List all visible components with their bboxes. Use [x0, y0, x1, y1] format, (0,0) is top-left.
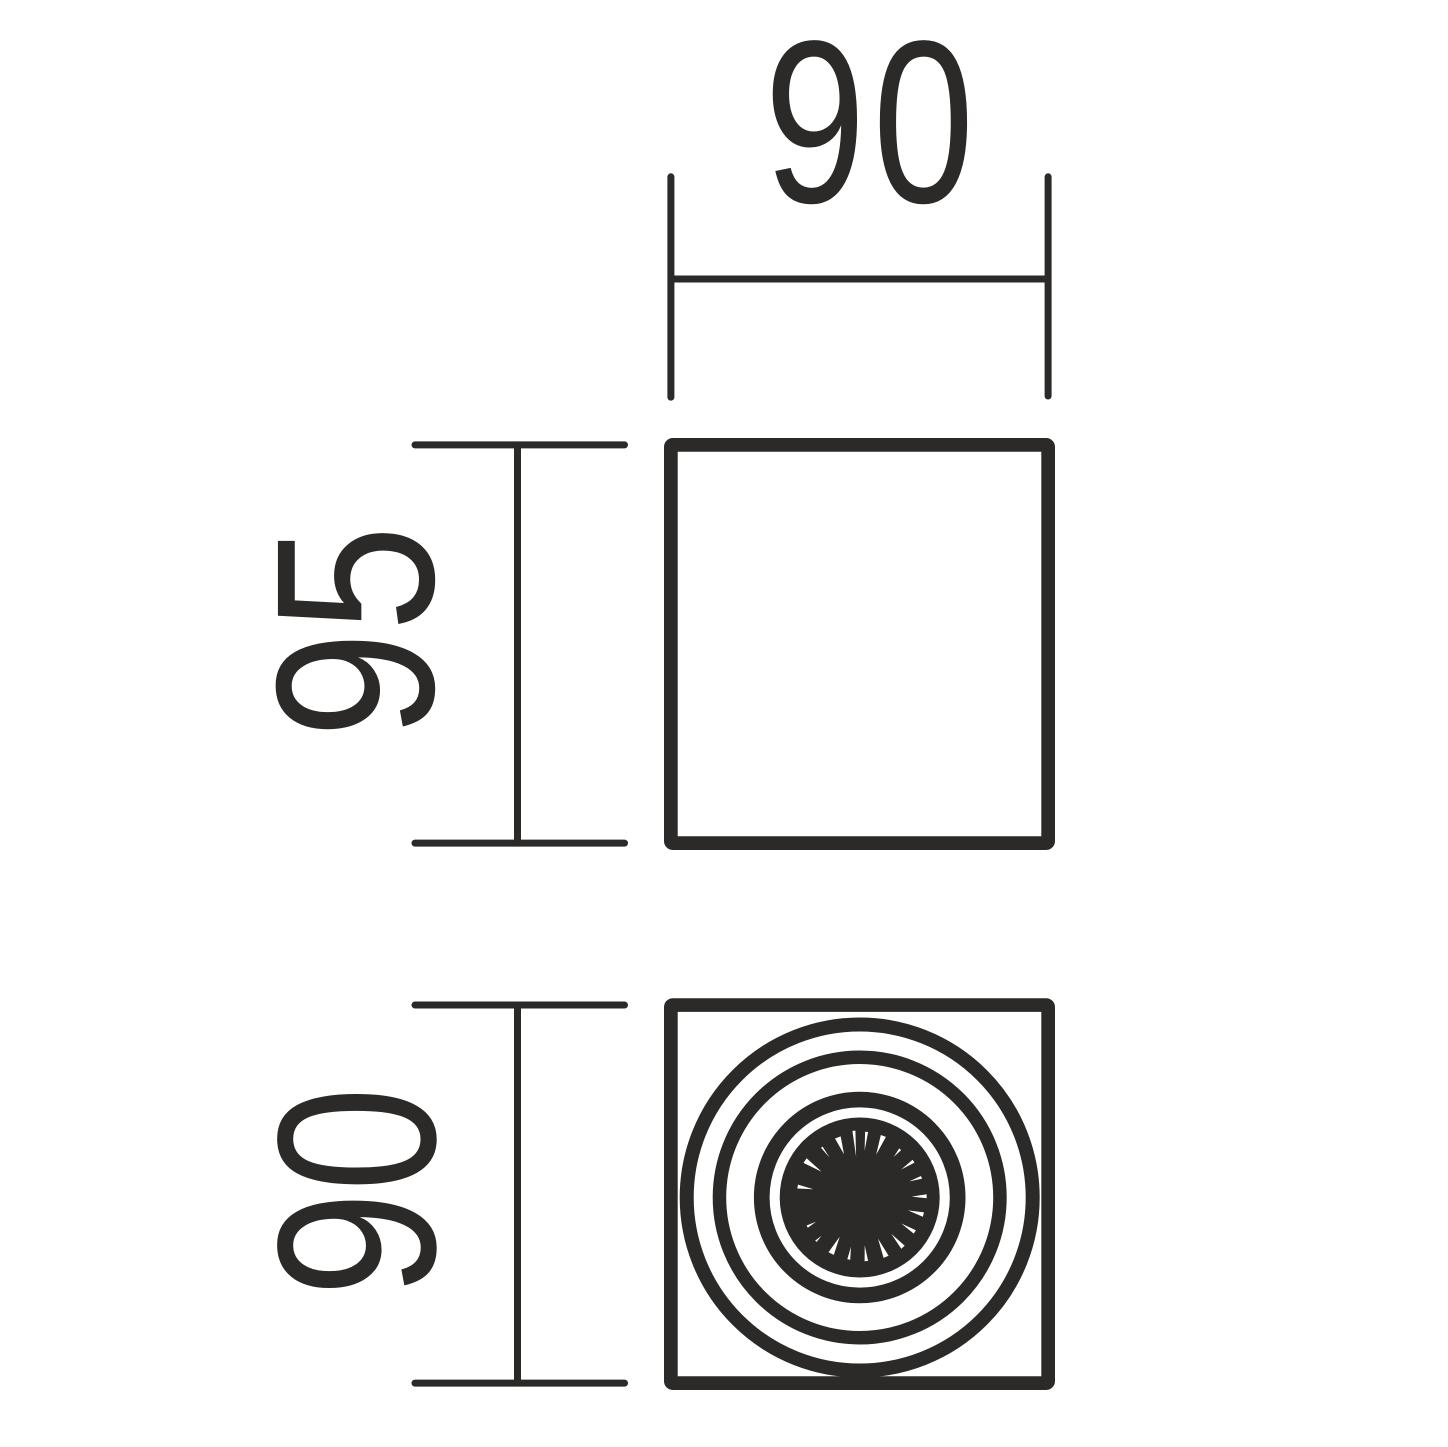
svg-text:90: 90 [232, 1087, 483, 1297]
svg-text:95: 95 [230, 525, 481, 738]
svg-text:90: 90 [764, 0, 981, 252]
